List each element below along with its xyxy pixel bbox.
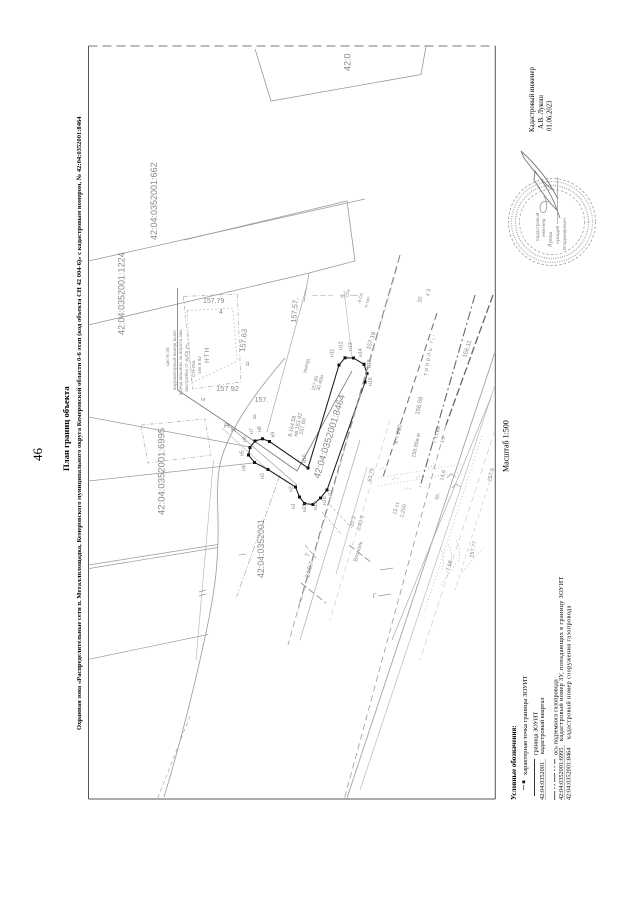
svg-text:Кадастровый: Кадастровый [534,212,540,241]
svg-text:II: II [246,361,250,368]
svg-text:157.: 157. [255,397,269,404]
svg-text:цвс-6 25: цвс-6 25 [165,347,171,366]
svg-text:Условные обозначения:: Условные обозначения: [510,725,518,800]
svg-text:кадастровый номер ЗУ, попадающ: кадастровый номер ЗУ, попадающих в грани… [558,576,565,741]
svg-text:42:04:0352001:8464: 42:04:0352001:8464 [566,747,573,800]
svg-text:Владимирович: Владимирович [562,218,567,250]
svg-text:нг: нг [201,397,206,403]
svg-text:Лукош: Лукош [548,232,554,247]
svg-text:Аркадий: Аркадий [554,225,560,244]
svg-text:157.79: 157.79 [203,298,225,305]
svg-text:157 92: 157 92 [216,384,239,393]
svg-text:20: 20 [417,296,424,303]
svg-text:н12: н12 [339,341,345,350]
svg-text:кадастровый квартал: кадастровый квартал [539,698,546,754]
svg-text:Н: Н [224,423,229,430]
svg-text:н5: н5 [240,450,246,456]
svg-text:46: 46 [30,448,45,462]
svg-text:н9: н9 [271,432,277,438]
svg-text:н18: н18 [322,496,328,505]
svg-text:Застройка ст-дуб5 уч.: Застройка ст-дуб5 уч. [183,343,190,392]
svg-text:кадастровый номер сооружения: кадастровый номер сооружения газопровода [566,605,573,739]
svg-text:характерная точка границы ЗОУИ: характерная точка границы ЗОУИТ [522,676,529,775]
svg-text:н11: н11 [330,349,336,357]
svg-text:А.В. Лукош: А.В. Лукош [538,94,545,129]
svg-text:Охранная зона «Распределительн: Охранная зона «Распределительные сети п.… [76,116,83,730]
svg-text:Кадастровый инженер: Кадастровый инженер [529,67,536,132]
svg-text:элк 9.92: элк 9.92 [197,356,203,374]
svg-text:н7: н7 [249,428,255,434]
svg-text:н2: н2 [289,486,295,492]
svg-text:План границ объекта: План границ объекта [61,386,71,471]
svg-text:42:04:0352001:662: 42:04:0352001:662 [149,162,159,240]
svg-text:II: II [253,414,257,421]
svg-text:42:04:0352001:1224: 42:04:0352001:1224 [117,252,127,335]
svg-text:инженер: инженер [541,218,546,237]
svg-text:н4: н4 [242,465,248,471]
svg-text:н1: н1 [291,503,297,509]
svg-text:водонапорный выезд выкл: водонапорный выезд выкл [171,330,178,390]
svg-text:н16: н16 [368,377,374,386]
svg-text:42:0: 42:0 [343,53,353,71]
svg-text:4: 4 [219,309,223,316]
svg-text:НТН: НТН [204,347,211,363]
svg-text:н8: н8 [257,426,263,432]
svg-text:42:04:0352001:6995: 42:04:0352001:6995 [157,428,168,515]
svg-text:СН-25а: СН-25а [191,360,197,377]
svg-text:н14: н14 [358,348,364,357]
svg-text:н19: н19 [313,501,319,510]
svg-text:н20: н20 [302,503,308,512]
svg-text:н10: н10 [302,454,308,463]
svg-text:н6: н6 [242,436,248,442]
svg-text:Масштаб 1:500: Масштаб 1:500 [502,420,511,472]
svg-text:Н: Н [231,427,236,434]
svg-text:01.06.2023: 01.06.2023 [547,100,554,131]
svg-text:выезд машины за ворота зав.: выезд машины за ворота зав. [179,329,184,395]
svg-text:н3: н3 [260,473,266,479]
